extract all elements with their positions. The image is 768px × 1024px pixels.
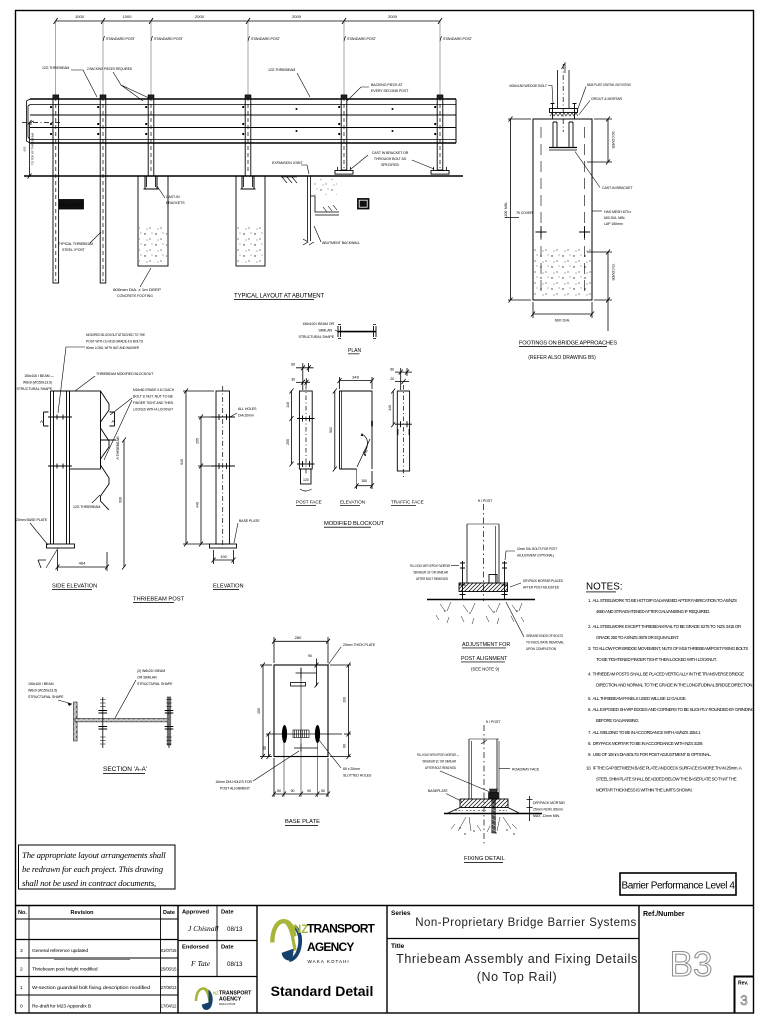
svg-text:STRUCTURAL SHAPE: STRUCTURAL SHAPE <box>137 682 173 686</box>
svg-text:HAS MESH 675 x: HAS MESH 675 x <box>604 210 631 214</box>
svg-text:M16x50 GRADE 4.6 COACH: M16x50 GRADE 4.6 COACH <box>133 388 174 392</box>
svg-text:20mm BASE PLATE: 20mm BASE PLATE <box>16 518 48 522</box>
svg-text:ADJUSTMENT FOR: ADJUSTMENT FOR <box>462 642 510 648</box>
svg-text:120: 120 <box>303 478 309 482</box>
svg-text:BRIDGE ABUT.: BRIDGE ABUT. <box>61 203 84 207</box>
svg-text:OR SIMILAR: OR SIMILAR <box>137 676 157 680</box>
svg-text:08/13: 08/13 <box>227 926 243 933</box>
svg-text:STRUCTURAL SHAPE: STRUCTURAL SHAPE <box>28 695 64 699</box>
svg-text:STANDARD POST: STANDARD POST <box>251 37 281 41</box>
svg-text:FOOTINGS ON BRIDGE APPROACHES: FOOTINGS ON BRIDGE APPROACHES <box>519 341 617 347</box>
svg-text:Revision: Revision <box>71 910 95 916</box>
svg-text:1. ALL STEELWORK TO BE HOT DI: 1. ALL STEELWORK TO BE HOT DIP GALVANISE… <box>588 598 737 603</box>
svg-text:M20x150 WEDGE BOLT: M20x150 WEDGE BOLT <box>509 84 547 88</box>
svg-text:150x100 I BEAM: 150x100 I BEAM <box>28 682 54 686</box>
svg-text:NOTES:: NOTES: <box>586 582 622 593</box>
svg-text:2000: 2000 <box>292 14 302 19</box>
svg-text:THRIEBEAM MODIFIED BLOCKOUT: THRIEBEAM MODIFIED BLOCKOUT <box>96 372 154 376</box>
svg-text:ℏ THRIEBEAM: ℏ THRIEBEAM <box>115 436 120 459</box>
svg-text:0: 0 <box>20 1004 23 1010</box>
svg-text:Date: Date <box>221 945 234 951</box>
svg-text:150: 150 <box>361 479 367 483</box>
svg-text:2: 2 <box>20 967 23 973</box>
svg-text:POST FACE: POST FACE <box>296 500 322 505</box>
svg-text:45°: 45° <box>363 450 369 454</box>
svg-text:150x100 I BEAM —: 150x100 I BEAM — <box>24 374 54 378</box>
svg-text:65 x 20mm: 65 x 20mm <box>343 767 360 771</box>
svg-text:600 DIA. MIN.: 600 DIA. MIN. <box>604 216 625 220</box>
svg-text:ELEVATION: ELEVATION <box>213 584 244 590</box>
svg-text:No.: No. <box>18 910 27 916</box>
svg-text:W6x9 (W150x13.5): W6x9 (W150x13.5) <box>28 689 57 693</box>
svg-text:POST ALIGNMENT: POST ALIGNMENT <box>461 656 508 662</box>
svg-text:140: 140 <box>286 402 290 408</box>
svg-text:2000: 2000 <box>195 14 205 19</box>
svg-text:930: 930 <box>119 497 123 503</box>
svg-text:90: 90 <box>307 789 311 793</box>
svg-text:General reference updated: General reference updated <box>32 948 88 954</box>
svg-text:GREASE ENDS OF BOLTS: GREASE ENDS OF BOLTS <box>526 634 564 638</box>
svg-text:STANDARD POST: STANDARD POST <box>443 37 473 41</box>
svg-text:Date: Date <box>163 910 175 916</box>
svg-text:Thriebeam Assembly and Fixing: Thriebeam Assembly and Fixing Details <box>396 952 638 966</box>
svg-text:THROUGH BOLT AS: THROUGH BOLT AS <box>374 157 407 161</box>
svg-text:WAKA KOTAHI: WAKA KOTAHI <box>219 1003 236 1006</box>
svg-text:TO TOP OF THRIEBEAM: TO TOP OF THRIEBEAM <box>31 132 35 165</box>
svg-text:FIXING DETAIL: FIXING DETAIL <box>464 856 506 862</box>
svg-text:75 COVER: 75 COVER <box>611 264 615 281</box>
svg-text:ABUTMENT BACKWALL: ABUTMENT BACKWALL <box>322 241 360 245</box>
svg-text:TO BE TIGHTENED FINGER TIGHT T: TO BE TIGHTENED FINGER TIGHT THEN LOCKED… <box>596 657 717 662</box>
svg-text:Series: Series <box>391 910 411 917</box>
svg-text:GRADE 250 TO AS/NZS 3678 OR EQ: GRADE 250 TO AS/NZS 3678 OR EQUIVALENT. <box>596 635 679 640</box>
svg-text:TRANSPORT: TRANSPORT <box>307 922 376 936</box>
svg-text:The appropriate layout arrange: The appropriate layout arrangements shal… <box>22 850 166 860</box>
svg-text:SLOTTED HOLES: SLOTTED HOLES <box>343 774 372 778</box>
svg-text:190: 190 <box>220 554 227 559</box>
svg-text:250: 250 <box>257 708 261 714</box>
svg-text:(SEE NOTE 9): (SEE NOTE 9) <box>471 667 500 672</box>
svg-text:POST WITH 2x M16 GRADE 4.6 BOL: POST WITH 2x M16 GRADE 4.6 BOLTS <box>86 340 144 344</box>
svg-text:AFTER POST ADJUSTED: AFTER POST ADJUSTED <box>523 586 559 590</box>
svg-text:ROADWAY FACE: ROADWAY FACE <box>512 768 540 772</box>
svg-text:SPECIFIED: SPECIFIED <box>381 163 400 167</box>
svg-text:(No Top Rail): (No Top Rail) <box>477 970 558 984</box>
svg-text:Title: Title <box>391 943 405 950</box>
svg-text:10. IF THE GAP BETWEEN BASE P: 10. IF THE GAP BETWEEN BASE PLATE AND DE… <box>586 766 742 771</box>
svg-text:shall not be used in contract: shall not be used in contract documents, <box>22 878 156 888</box>
svg-text:DRYPACK MORTAR: DRYPACK MORTAR <box>533 801 565 805</box>
svg-text:50: 50 <box>263 746 267 750</box>
svg-text:4. THRIEBEAM POSTS SHALL BE P: 4. THRIEBEAM POSTS SHALL BE PLACED VERTI… <box>588 672 744 677</box>
svg-text:FINGER TIGHT AND THEN: FINGER TIGHT AND THEN <box>133 401 173 405</box>
svg-text:280: 280 <box>295 635 302 640</box>
svg-text:BRACKETS: BRACKETS <box>166 201 185 205</box>
svg-text:FILL HOLE WITH EPOXY MORTAR —: FILL HOLE WITH EPOXY MORTAR — <box>417 753 459 757</box>
svg-text:PLAN: PLAN <box>348 348 361 354</box>
svg-text:Non-Proprietary Bridge Barrier: Non-Proprietary Bridge Barrier Systems <box>415 917 637 929</box>
svg-text:8. DRYPACK MORTAR TO BE IN AC: 8. DRYPACK MORTAR TO BE IN ACCORDANCE WI… <box>588 741 703 746</box>
svg-text:2 BACKING PIECES REQUIRED: 2 BACKING PIECES REQUIRED <box>87 67 132 71</box>
svg-text:90: 90 <box>308 654 312 658</box>
svg-text:MAX, 12mm MIN.: MAX, 12mm MIN. <box>533 814 560 818</box>
svg-text:STRUCTURAL SHAPE: STRUCTURAL SHAPE <box>299 335 335 339</box>
svg-text:10mm DIA. BOLTS FOR POST: 10mm DIA. BOLTS FOR POST <box>517 547 558 551</box>
svg-text:60: 60 <box>291 363 295 367</box>
svg-text:12G THRIEBEAM: 12G THRIEBEAM <box>73 505 100 509</box>
svg-text:BEFORE GALVANISING.: BEFORE GALVANISING. <box>596 718 639 723</box>
svg-text:Rev.: Rev. <box>738 981 749 987</box>
svg-text:1000: 1000 <box>75 14 85 19</box>
svg-text:DRYPACK MORTAR PLACED: DRYPACK MORTAR PLACED <box>523 579 563 583</box>
svg-text:349: 349 <box>352 375 359 380</box>
svg-text:STEEL SHIM PLATE SHALL BE ADDE: STEEL SHIM PLATE SHALL BE ADDED BELOW TH… <box>596 777 737 782</box>
svg-text:27/08/13: 27/08/13 <box>161 985 177 990</box>
svg-text:12G THRIEBEAM: 12G THRIEBEAM <box>268 68 295 72</box>
svg-text:CAST-IN: CAST-IN <box>166 195 180 199</box>
svg-text:BACKING PIECE AT: BACKING PIECE AT <box>371 83 403 87</box>
svg-text:DIRECTION AND NORMAL TO THE GR: DIRECTION AND NORMAL TO THE GRADE IN THE… <box>596 683 753 688</box>
svg-text:be redrawn for each project. T: be redrawn for each project. This drawin… <box>22 864 164 874</box>
svg-text:TRAFFIC FACE: TRAFFIC FACE <box>391 500 424 505</box>
svg-text:600: 600 <box>23 146 27 151</box>
svg-text:5. ALL THRIEBEAM PANELS USED: 5. ALL THRIEBEAM PANELS USED WILL BE 12 … <box>588 696 686 701</box>
svg-text:60: 60 <box>390 368 394 372</box>
svg-text:464: 464 <box>79 561 86 566</box>
svg-text:TYPICAL LAYOUT AT ABUTMENT: TYPICAL LAYOUT AT ABUTMENT <box>234 294 325 300</box>
svg-text:(2) W6x20 I BEAM: (2) W6x20 I BEAM <box>137 669 165 673</box>
svg-text:ALL HOLES: ALL HOLES <box>238 407 257 411</box>
svg-text:502: 502 <box>329 427 333 433</box>
svg-text:1200 MIN.: 1200 MIN. <box>504 202 508 219</box>
svg-text:01/07/15: 01/07/15 <box>161 948 177 953</box>
svg-text:190: 190 <box>343 697 347 703</box>
svg-text:3: 3 <box>20 948 23 954</box>
svg-text:AGENCY: AGENCY <box>307 940 354 954</box>
svg-text:BOLT & NUT. NUT TO BE: BOLT & NUT. NUT TO BE <box>133 395 174 399</box>
svg-text:08/13: 08/13 <box>227 961 243 968</box>
svg-text:255: 255 <box>196 438 200 444</box>
svg-text:THRIEBEAM POST: THRIEBEAM POST <box>133 597 185 603</box>
svg-text:50 COVER: 50 COVER <box>611 132 615 149</box>
svg-text:AFTER BOLT REMOVED: AFTER BOLT REMOVED <box>425 766 456 770</box>
svg-text:50: 50 <box>321 789 325 793</box>
svg-text:17/04/12: 17/04/12 <box>161 1004 177 1009</box>
svg-text:EXPANSION JOINT: EXPANSION JOINT <box>272 161 303 165</box>
svg-text:W6x9 (W150x13.5): W6x9 (W150x13.5) <box>23 381 52 385</box>
svg-text:STANDARD POST: STANDARD POST <box>106 37 136 41</box>
svg-text:W-section guardrail bolt fixin: W-section guardrail bolt fixing descript… <box>32 985 150 991</box>
svg-text:150x100 I BEAM OR: 150x100 I BEAM OR <box>302 322 334 326</box>
svg-text:600mm DIA. x 1m DEEP: 600mm DIA. x 1m DEEP <box>113 288 162 292</box>
svg-text:'SIKADUR 31' OR SIMILAR: 'SIKADUR 31' OR SIMILAR <box>413 571 448 575</box>
svg-text:945: 945 <box>180 459 184 465</box>
svg-text:UPON COMPLETION: UPON COMPLETION <box>526 647 556 651</box>
svg-text:440: 440 <box>196 502 200 508</box>
svg-text:3: 3 <box>740 993 748 1008</box>
svg-text:6. ALL EXPOSED SHARP EDGES AN: 6. ALL EXPOSED SHARP EDGES AND CORNERS T… <box>588 707 755 712</box>
svg-text:90: 90 <box>291 789 295 793</box>
svg-text:Barrier Performance Level 4: Barrier Performance Level 4 <box>622 881 736 892</box>
svg-text:Endorsed: Endorsed <box>182 945 209 951</box>
svg-text:ELEVATION: ELEVATION <box>340 500 365 505</box>
svg-text:50mm LONG, WITH NUT AND WASHER: 50mm LONG, WITH NUT AND WASHER <box>86 346 139 350</box>
svg-text:20: 20 <box>390 377 394 381</box>
svg-text:MODIFIED BLOCKOUT: MODIFIED BLOCKOUT <box>324 521 385 527</box>
svg-text:STANDARD POST: STANDARD POST <box>154 37 184 41</box>
svg-text:20mm THICK PLATE: 20mm THICK PLATE <box>343 643 376 647</box>
svg-text:2000: 2000 <box>388 14 398 19</box>
svg-text:25mm NOM. 65mm: 25mm NOM. 65mm <box>533 808 563 812</box>
svg-text:Standard Detail: Standard Detail <box>271 983 374 999</box>
svg-text:BASE PLATE CENTRAL ON FOOTING: BASE PLATE CENTRAL ON FOOTING <box>587 83 631 87</box>
svg-text:DIA 20mm: DIA 20mm <box>238 414 254 418</box>
svg-text:LOCKED WITH A LOCKNUT: LOCKED WITH A LOCKNUT <box>133 408 174 412</box>
svg-text:ADJUSTMENT (OPTIONAL): ADJUSTMENT (OPTIONAL) <box>517 554 554 558</box>
svg-text:255: 255 <box>286 439 290 445</box>
svg-text:BASEPLATE: BASEPLATE <box>428 789 448 793</box>
svg-text:CONCRETE FOOTING: CONCRETE FOOTING <box>117 294 153 298</box>
svg-text:CAST-IN BRACKET: CAST-IN BRACKET <box>602 186 633 190</box>
svg-text:12G THRIEBEAM: 12G THRIEBEAM <box>42 66 69 70</box>
svg-text:140: 140 <box>388 405 392 411</box>
svg-text:50: 50 <box>277 789 281 793</box>
svg-text:Re-draft for M23 Appendix B: Re-draft for M23 Appendix B <box>32 1004 91 1010</box>
svg-text:75 COVER: 75 COVER <box>516 211 533 215</box>
svg-text:MODIFIED BLOCKOUT ATTACHED TO: MODIFIED BLOCKOUT ATTACHED TO THE <box>86 333 146 337</box>
svg-text:POST ALIGNMENT: POST ALIGNMENT <box>220 787 251 791</box>
svg-text:25/05/15: 25/05/15 <box>161 967 177 972</box>
svg-text:MORTAR THICKNESS IS WITHIN THE: MORTAR THICKNESS IS WITHIN THE LIMITS SH… <box>596 788 692 793</box>
svg-text:F Tate: F Tate <box>190 959 211 968</box>
svg-text:SIDE ELEVATION: SIDE ELEVATION <box>52 584 97 590</box>
svg-text:FILL HOLE WITH EPOXY MORTAR: FILL HOLE WITH EPOXY MORTAR <box>410 564 450 568</box>
svg-text:WAKA KOTAHI: WAKA KOTAHI <box>308 959 350 964</box>
svg-text:SIMILAR: SIMILAR <box>318 329 332 333</box>
svg-text:STANDARD POST: STANDARD POST <box>347 37 377 41</box>
svg-text:ℏ I POST: ℏ I POST <box>486 719 501 724</box>
svg-text:Date: Date <box>221 910 234 916</box>
svg-text:CAST IN BRACKET OR: CAST IN BRACKET OR <box>372 151 409 155</box>
svg-text:BASE PLATE: BASE PLATE <box>285 819 320 825</box>
svg-text:30: 30 <box>291 378 295 382</box>
svg-text:TYPICAL THRIEBEAM: TYPICAL THRIEBEAM <box>58 242 93 246</box>
svg-text:Approved: Approved <box>182 910 210 916</box>
svg-text:9. USE OF 10mm DIA BOLTS FOR: 9. USE OF 10mm DIA BOLTS FOR POST ADJUST… <box>588 752 711 757</box>
svg-text:1: 1 <box>20 985 23 991</box>
svg-text:10mm DIA HOLES FOR: 10mm DIA HOLES FOR <box>215 780 252 784</box>
svg-text:ℏ I POST: ℏ I POST <box>478 498 493 503</box>
svg-text:LAP 150mm: LAP 150mm <box>604 222 623 226</box>
svg-text:Ref./Number: Ref./Number <box>643 911 685 918</box>
svg-text:2. ALL STEELWORK EXCEPT THRIE: 2. ALL STEELWORK EXCEPT THRIEBEAM RAIL T… <box>588 624 741 629</box>
svg-text:EVERY SECOND POST: EVERY SECOND POST <box>371 89 409 93</box>
svg-text:GROUT & MORTAR: GROUT & MORTAR <box>591 97 623 101</box>
svg-text:3. TO ALLOW FOR BRIDGE MOVEME: 3. TO ALLOW FOR BRIDGE MOVEMENT, NUTS OF… <box>588 646 748 651</box>
svg-text:7. ALL WELDING TO BE IN ACCOR: 7. ALL WELDING TO BE IN ACCORDANCE WITH … <box>588 730 701 735</box>
svg-text:TO FACILITATE REMOVAL: TO FACILITATE REMOVAL <box>526 641 564 645</box>
svg-text:Thriebeam post height modified: Thriebeam post height modified <box>32 967 98 973</box>
svg-text:STRUCTURAL SHAPE: STRUCTURAL SHAPE <box>17 387 53 391</box>
svg-text:AFTER BOLT REMOVED: AFTER BOLT REMOVED <box>416 577 448 581</box>
svg-text:B3: B3 <box>670 945 713 984</box>
svg-text:(REFER ALSO DRAWING B5): (REFER ALSO DRAWING B5) <box>528 355 596 361</box>
svg-text:AGENCY: AGENCY <box>219 997 242 1003</box>
svg-text:60: 60 <box>343 744 347 748</box>
svg-text:SECTION 'A-A': SECTION 'A-A' <box>103 766 147 773</box>
svg-text:'SIKADUR 31' OR SIMILAR: 'SIKADUR 31' OR SIMILAR <box>422 760 456 764</box>
svg-text:BASE PLATE: BASE PLATE <box>239 519 260 523</box>
svg-text:600 DIA.: 600 DIA. <box>555 318 571 323</box>
svg-text:J Chisnall: J Chisnall <box>188 924 219 933</box>
svg-text:1000: 1000 <box>123 14 133 19</box>
svg-text:STEEL I POST: STEEL I POST <box>62 248 86 252</box>
svg-text:4680 AND STRAIGHTENED AFTER GA: 4680 AND STRAIGHTENED AFTER GALVANISING … <box>596 609 710 614</box>
